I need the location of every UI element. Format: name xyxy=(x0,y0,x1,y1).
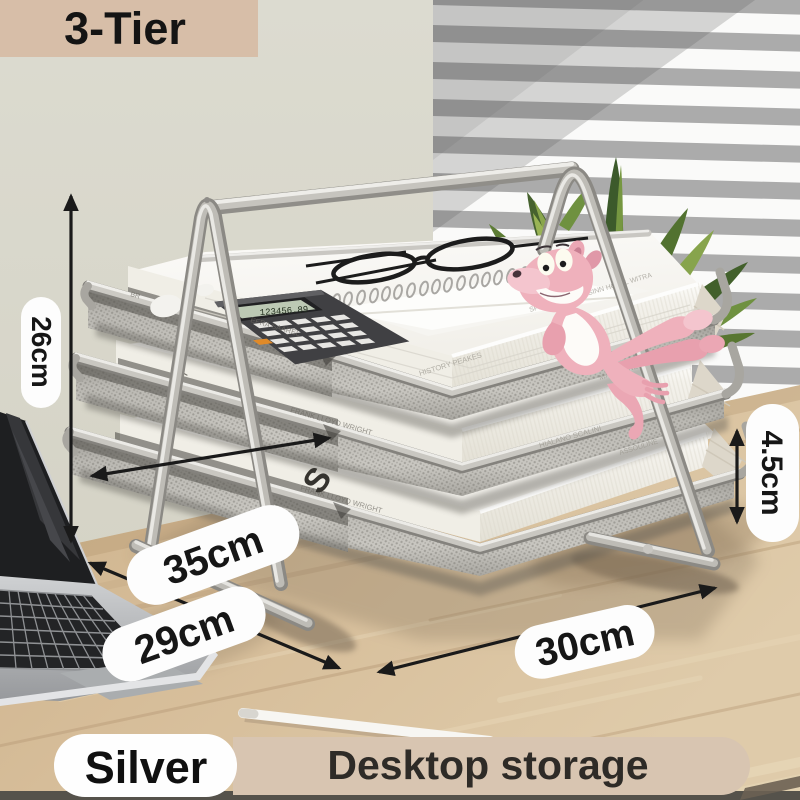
svg-text:Desktop storage: Desktop storage xyxy=(327,742,648,788)
svg-text:Silver: Silver xyxy=(85,742,208,793)
svg-text:4.5cm: 4.5cm xyxy=(755,430,788,515)
svg-text:26cm: 26cm xyxy=(26,316,57,388)
svg-text:3-Tier: 3-Tier xyxy=(64,3,186,54)
